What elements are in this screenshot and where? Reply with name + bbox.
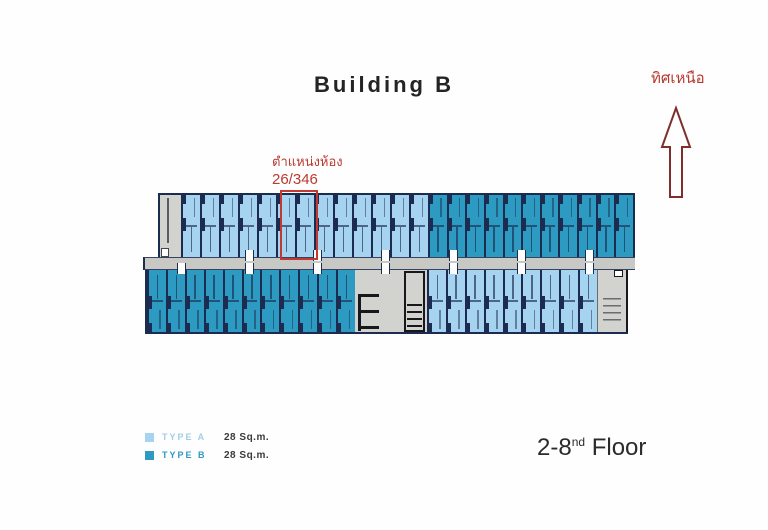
unit-type-b (596, 195, 615, 257)
unit-type-b (521, 195, 540, 257)
unit-type-a (559, 270, 578, 332)
unit-type-b (242, 270, 261, 332)
unit-type-b (298, 270, 317, 332)
unit-type-a (446, 270, 465, 332)
unit-type-b (317, 270, 336, 332)
type-a-area: 28 Sq.m. (224, 432, 269, 443)
north-direction-label: ทิศเหนือ (651, 66, 705, 90)
unit-type-b (279, 270, 298, 332)
unit-type-a (578, 270, 597, 332)
floor-range: 2-8 (537, 434, 572, 461)
unit-type-b (260, 270, 279, 332)
unit-type-b (147, 270, 166, 332)
unit-door (585, 263, 594, 274)
unit-door (449, 263, 458, 274)
type-b-swatch-icon (145, 451, 154, 460)
legend: TYPE A 28 Sq.m. TYPE B 28 Sq.m. (145, 428, 269, 464)
unit-door (381, 250, 390, 261)
stairwell-icon (404, 271, 425, 332)
highlighted-unit-box (280, 190, 318, 260)
unit-type-b (166, 270, 185, 332)
unit-type-b (540, 195, 559, 257)
floor-plan (143, 193, 637, 334)
legend-row-type-b: TYPE B 28 Sq.m. (145, 446, 269, 464)
stair-block (597, 270, 628, 332)
type-a-swatch-icon (145, 433, 154, 442)
type-b-area: 28 Sq.m. (224, 450, 269, 461)
unit-door (381, 263, 390, 274)
unit-type-b (503, 195, 522, 257)
unit-type-a (200, 195, 219, 257)
unit-type-b (447, 195, 466, 257)
south-wing (145, 270, 628, 334)
units (427, 270, 597, 332)
unit-type-b (428, 195, 447, 257)
type-b-label: TYPE B (162, 450, 224, 460)
unit-type-b (614, 195, 635, 257)
stair-strip (158, 195, 181, 257)
floor-suffix: nd (572, 435, 585, 449)
unit-type-a (465, 270, 484, 332)
unit-annotation-caption: ตำแหน่งห้อง (272, 153, 343, 171)
unit-type-b (558, 195, 577, 257)
unit-type-a (333, 195, 352, 257)
unit-door (517, 250, 526, 261)
unit-door (585, 250, 594, 261)
unit-type-b (204, 270, 223, 332)
unit-door (313, 263, 322, 274)
unit-door (245, 250, 254, 261)
unit-type-a (540, 270, 559, 332)
unit-door (245, 263, 254, 274)
floor-range-label: 2-8nd Floor (537, 434, 646, 462)
unit-annotation-number: 26/346 (272, 171, 343, 189)
unit-type-a (219, 195, 238, 257)
type-a-label: TYPE A (162, 432, 224, 442)
service-core (355, 270, 427, 332)
unit-type-a (409, 195, 428, 257)
unit-door (517, 263, 526, 274)
units (145, 270, 355, 332)
unit-door (449, 250, 458, 261)
floor-plan-page: Building B ทิศเหนือ ตำแหน่งห้อง 26/346 T… (0, 0, 768, 530)
unit-type-b (577, 195, 596, 257)
stairwell-icon (358, 294, 379, 331)
unit-type-a (352, 195, 371, 257)
north-arrow-icon (656, 105, 696, 200)
unit-type-a (257, 195, 276, 257)
unit-type-b (223, 270, 242, 332)
unit-type-a (521, 270, 540, 332)
north-wing (158, 193, 635, 257)
floor-word: Floor (592, 434, 647, 461)
legend-row-type-a: TYPE A 28 Sq.m. (145, 428, 269, 446)
unit-type-b (185, 270, 204, 332)
unit-door (177, 263, 186, 274)
unit-type-b (465, 195, 484, 257)
units (428, 195, 635, 257)
unit-type-b (336, 270, 355, 332)
unit-type-a (181, 195, 200, 257)
unit-annotation: ตำแหน่งห้อง 26/346 (272, 153, 343, 189)
unit-type-a (427, 270, 446, 332)
unit-type-a (371, 195, 390, 257)
unit-type-a (390, 195, 409, 257)
unit-type-a (503, 270, 522, 332)
unit-type-a (484, 270, 503, 332)
unit-type-b (484, 195, 503, 257)
unit-type-a (238, 195, 257, 257)
